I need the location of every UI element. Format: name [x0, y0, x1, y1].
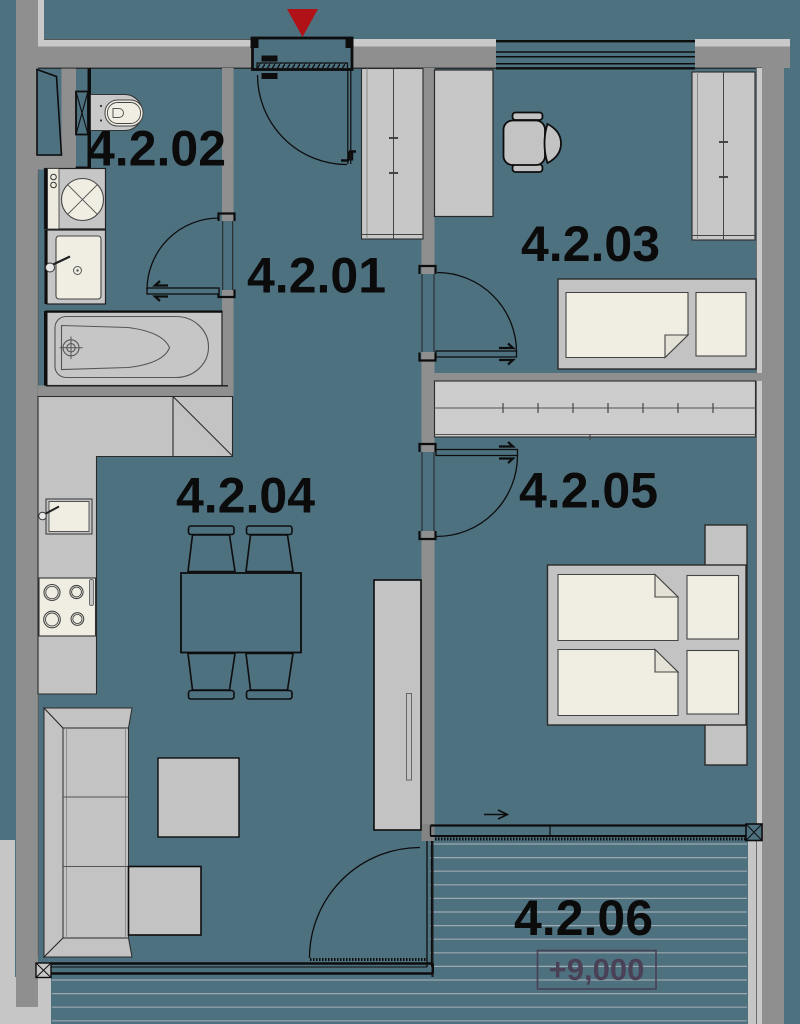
- svg-text:4.2.06: 4.2.06: [514, 890, 653, 946]
- svg-text:4.2.02: 4.2.02: [87, 121, 226, 177]
- svg-text:4.2.04: 4.2.04: [176, 468, 315, 524]
- svg-text:4.2.03: 4.2.03: [521, 216, 660, 272]
- svg-text:4.2.05: 4.2.05: [519, 463, 658, 519]
- svg-text:+9,000: +9,000: [549, 952, 645, 987]
- svg-text:4.2.01: 4.2.01: [247, 248, 386, 304]
